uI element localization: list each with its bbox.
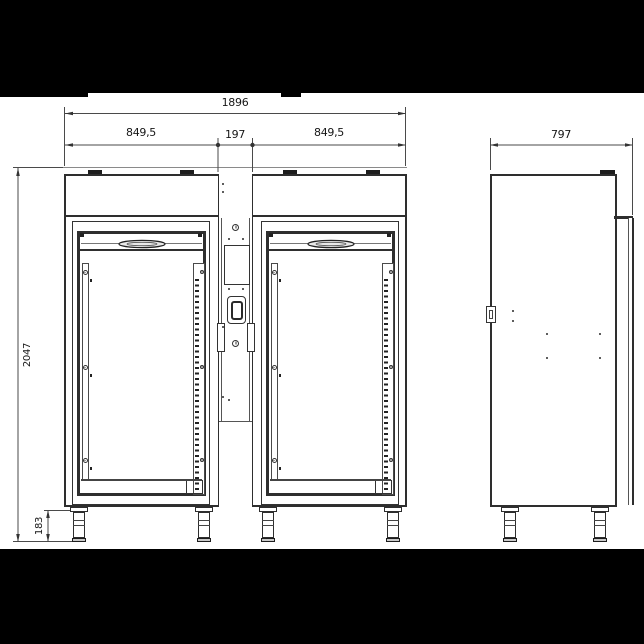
arrowheads — [16, 112, 633, 542]
dim-label-center-section: 197 — [220, 129, 250, 141]
dim-label-right-section: 849,5 — [304, 127, 354, 139]
dim-label-total-height: 2047 — [22, 335, 34, 375]
dim-label-total-width: 1896 — [215, 97, 255, 109]
drawing-page: { "drawing": { "type": "technical-dimens… — [0, 0, 644, 644]
dim-label-leg-height: 183 — [34, 512, 46, 540]
dim-label-depth: 797 — [541, 129, 581, 141]
dimension-lines — [0, 0, 644, 644]
dim-label-left-section: 849,5 — [116, 127, 166, 139]
